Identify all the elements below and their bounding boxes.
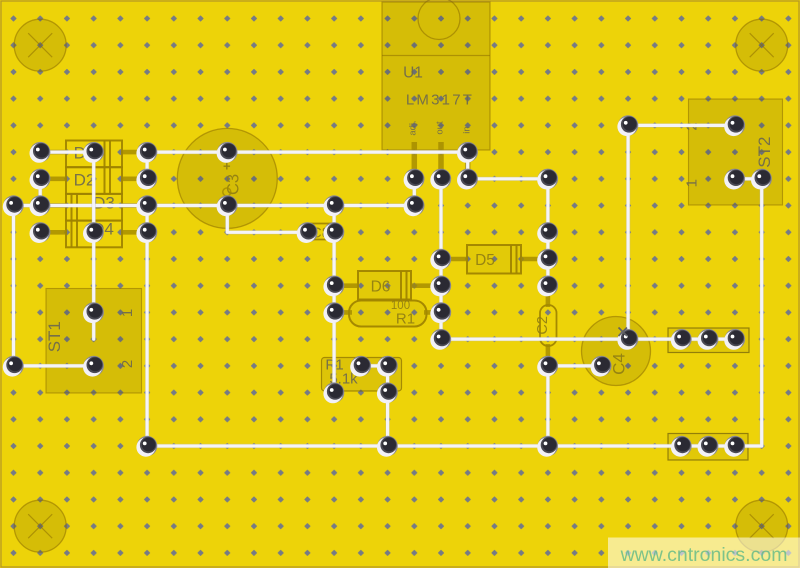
svg-text:C2: C2 [535,316,551,335]
svg-text:C4: C4 [610,353,629,375]
svg-text:ST1: ST1 [45,321,64,352]
svg-text:adj.: adj. [408,120,419,135]
svg-text:R1: R1 [396,311,415,328]
svg-text:www.cntronics.com: www.cntronics.com [620,544,788,566]
svg-text:D6: D6 [371,279,391,296]
svg-text:ST2: ST2 [755,137,774,168]
svg-text:C3: C3 [225,174,243,195]
svg-text:D3: D3 [93,194,115,213]
svg-text:in: in [462,126,473,133]
svg-text:U1: U1 [403,65,423,82]
svg-text:1: 1 [683,179,700,187]
svg-text:2: 2 [119,360,136,368]
svg-text:LM317T: LM317T [406,92,474,109]
svg-text:out: out [435,121,446,135]
svg-text:1: 1 [119,309,136,317]
svg-text:D5: D5 [475,252,495,269]
